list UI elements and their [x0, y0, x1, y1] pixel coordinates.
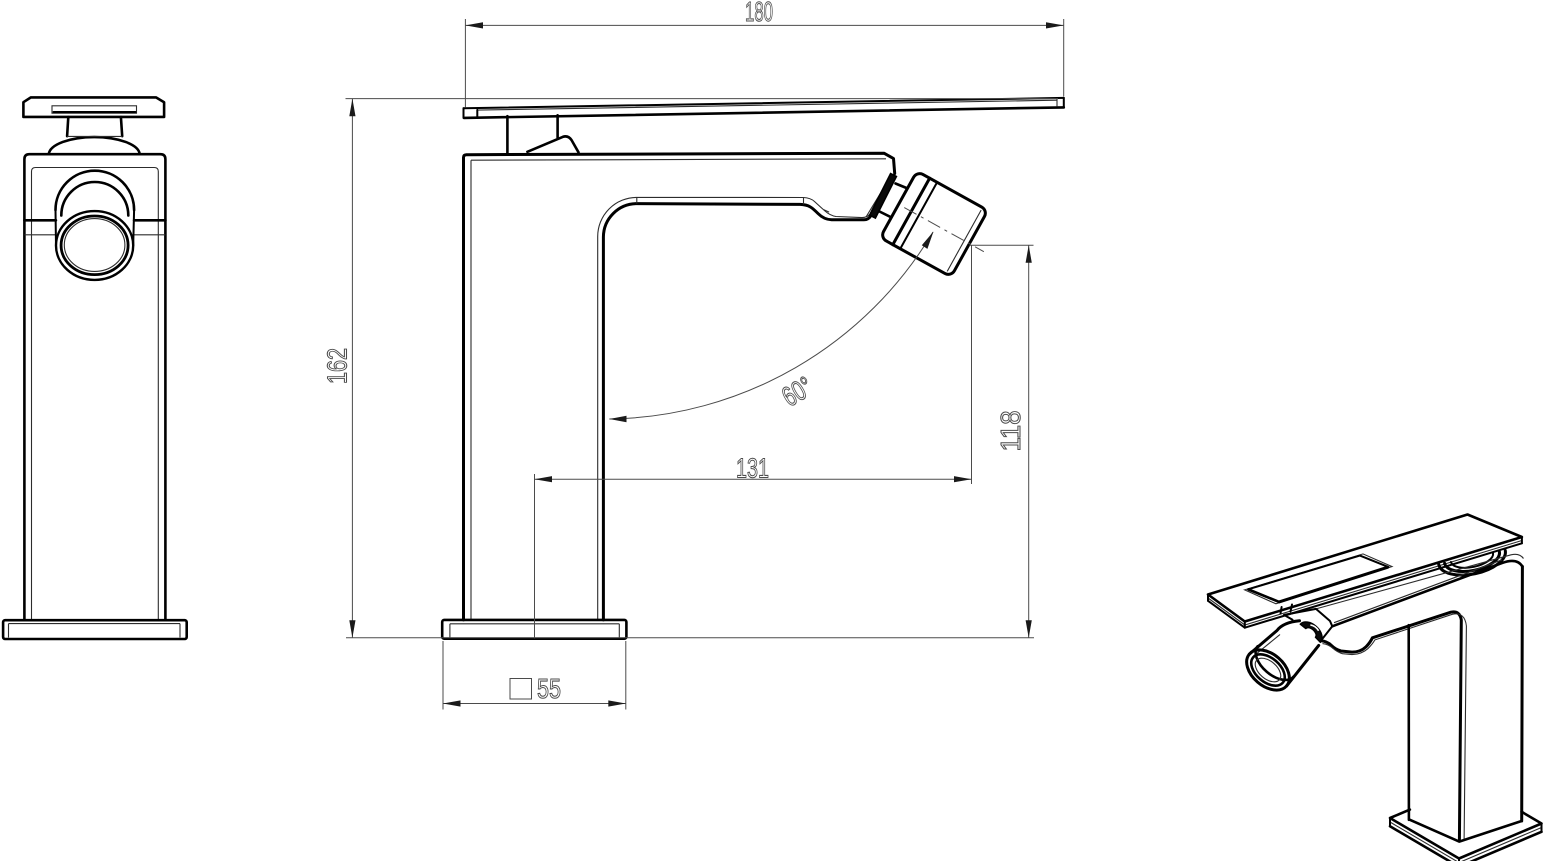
svg-text:55: 55	[537, 673, 561, 704]
svg-text:162: 162	[322, 348, 353, 384]
svg-text:131: 131	[736, 453, 769, 484]
svg-text:118: 118	[995, 411, 1026, 452]
svg-text:180: 180	[745, 0, 773, 27]
